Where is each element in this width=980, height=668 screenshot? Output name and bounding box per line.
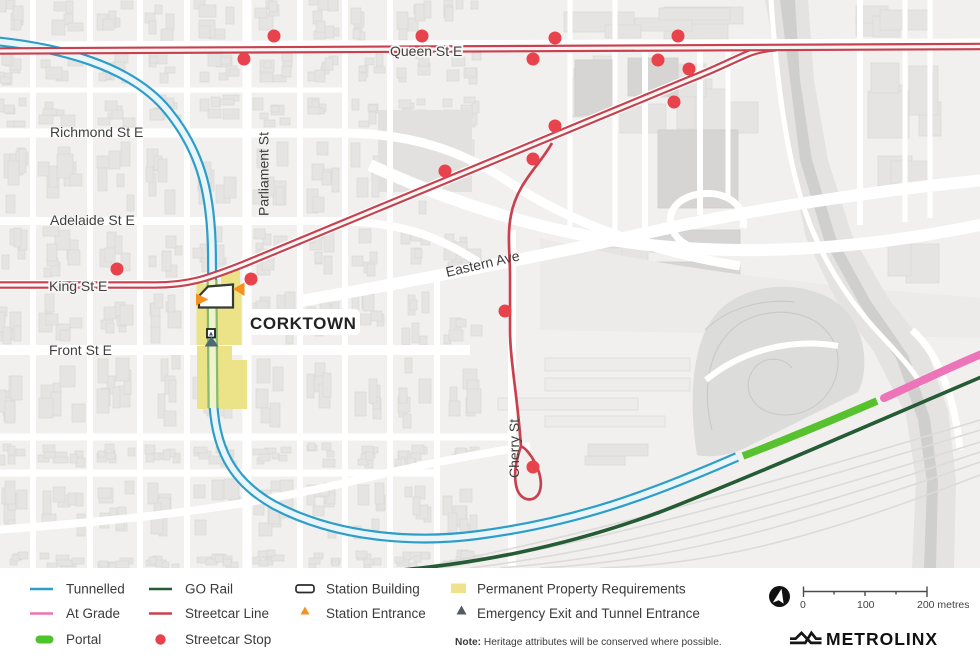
svg-text:Permanent Property Requirement: Permanent Property Requirements [477, 582, 686, 597]
svg-text:Tunnelled: Tunnelled [66, 582, 125, 597]
svg-text:GO Rail: GO Rail [185, 582, 233, 597]
svg-text:Adelaide St E: Adelaide St E [50, 212, 135, 228]
svg-text:Streetcar Line: Streetcar Line [185, 606, 269, 621]
svg-text:King St E: King St E [49, 278, 107, 294]
svg-text:Note: Heritage attributes will: Note: Heritage attributes will be conser… [455, 637, 722, 648]
svg-text:100: 100 [857, 599, 875, 611]
svg-text:Front St E: Front St E [49, 342, 112, 358]
svg-text:0: 0 [800, 599, 806, 611]
svg-text:Station Entrance: Station Entrance [326, 606, 426, 621]
svg-text:At Grade: At Grade [66, 606, 120, 621]
svg-text:Portal: Portal [66, 632, 101, 647]
svg-text:Parliament St: Parliament St [256, 132, 272, 216]
svg-text:Richmond St E: Richmond St E [50, 124, 143, 140]
svg-text:Cherry St: Cherry St [506, 419, 522, 478]
svg-text:Queen St E: Queen St E [390, 43, 462, 59]
svg-text:200 metres: 200 metres [917, 599, 970, 611]
svg-text:Streetcar Stop: Streetcar Stop [185, 632, 271, 647]
svg-text:METROLINX: METROLINX [826, 629, 938, 649]
svg-text:Station Building: Station Building [326, 582, 420, 597]
svg-text:CORKTOWN: CORKTOWN [250, 314, 356, 333]
svg-text:Emergency Exit and Tunnel Entr: Emergency Exit and Tunnel Entrance [477, 606, 700, 621]
